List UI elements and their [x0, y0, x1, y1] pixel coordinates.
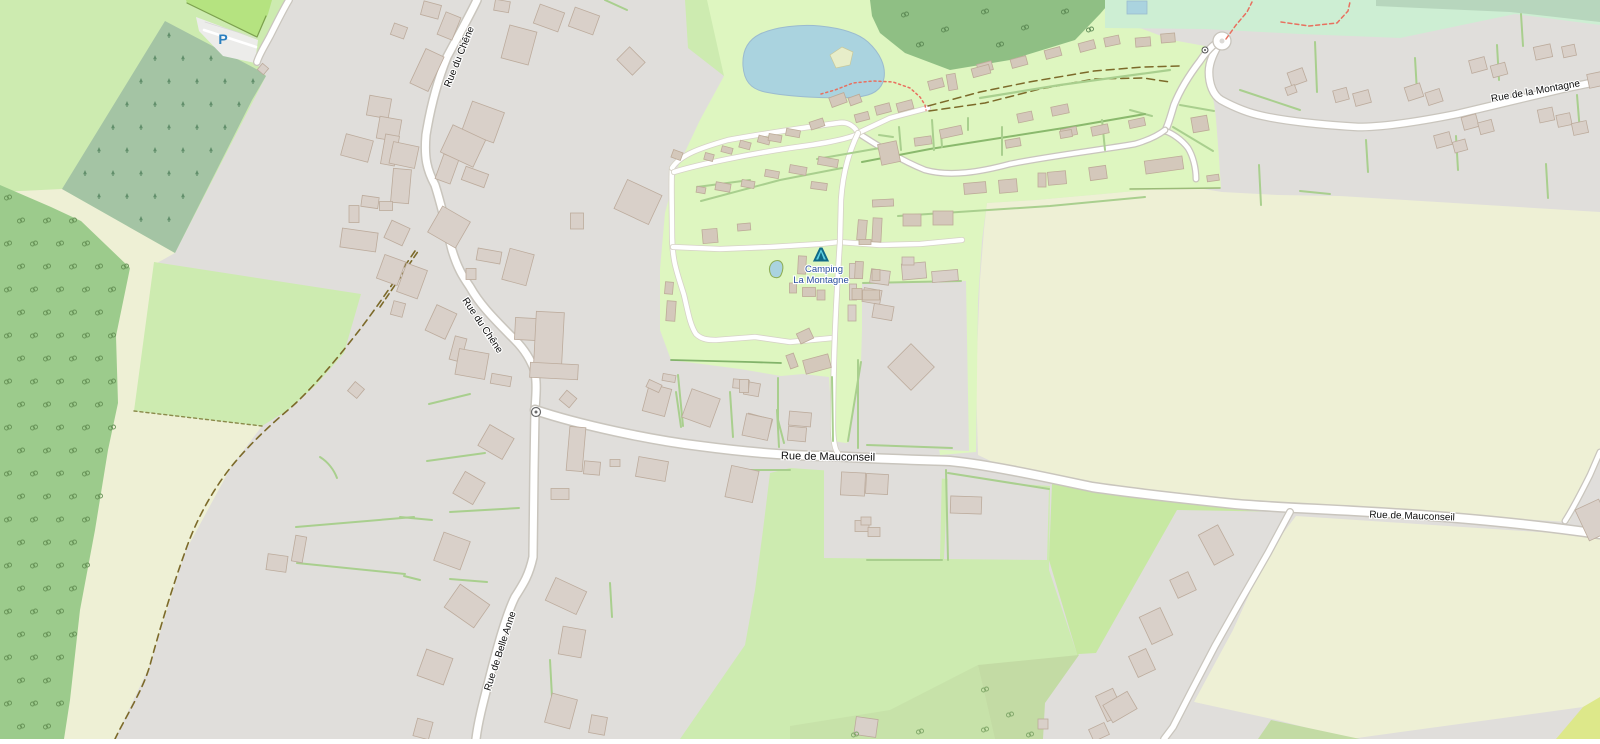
svg-text:Rue de Mauconseil: Rue de Mauconseil: [781, 450, 875, 464]
svg-text:Camping: Camping: [805, 264, 843, 275]
svg-text:P: P: [218, 31, 227, 47]
svg-text:La Montagne: La Montagne: [793, 275, 848, 286]
